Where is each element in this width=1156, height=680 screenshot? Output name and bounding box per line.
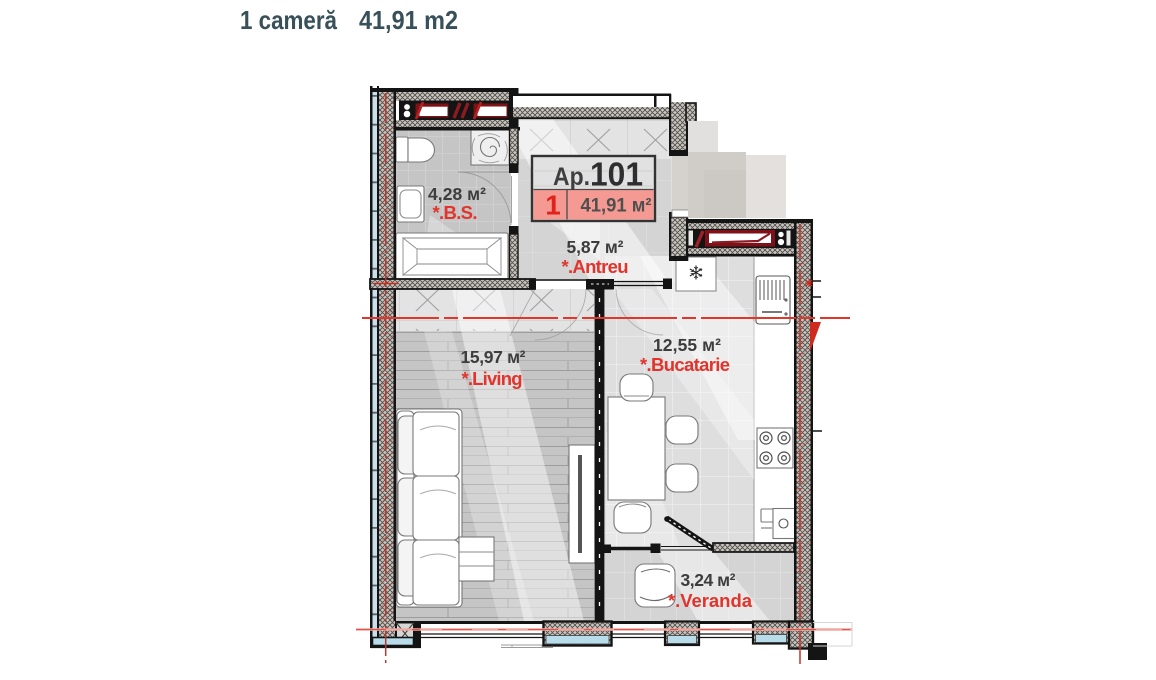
- svg-text:*.Veranda: *.Veranda: [668, 590, 753, 611]
- svg-text:Ap.: Ap.: [553, 163, 590, 191]
- svg-text:12,55 м²: 12,55 м²: [653, 335, 721, 355]
- svg-text:41,91 м²: 41,91 м²: [581, 196, 652, 217]
- svg-text:*.Antreu: *.Antreu: [562, 256, 629, 277]
- svg-text:1 cameră: 1 cameră: [240, 5, 337, 35]
- svg-text:*.B.S.: *.B.S.: [433, 202, 478, 223]
- svg-text:*.Living: *.Living: [462, 368, 523, 389]
- svg-text:101: 101: [590, 156, 643, 193]
- svg-text:3,24 м²: 3,24 м²: [681, 570, 736, 590]
- svg-text:1: 1: [545, 190, 561, 221]
- svg-text:4,28 м²: 4,28 м²: [428, 184, 486, 204]
- svg-text:41,91 m2: 41,91 m2: [359, 5, 458, 35]
- svg-text:15,97 м²: 15,97 м²: [461, 347, 526, 367]
- svg-text:5,87 м²: 5,87 м²: [567, 237, 624, 257]
- svg-text:*.Bucatarie: *.Bucatarie: [640, 354, 730, 375]
